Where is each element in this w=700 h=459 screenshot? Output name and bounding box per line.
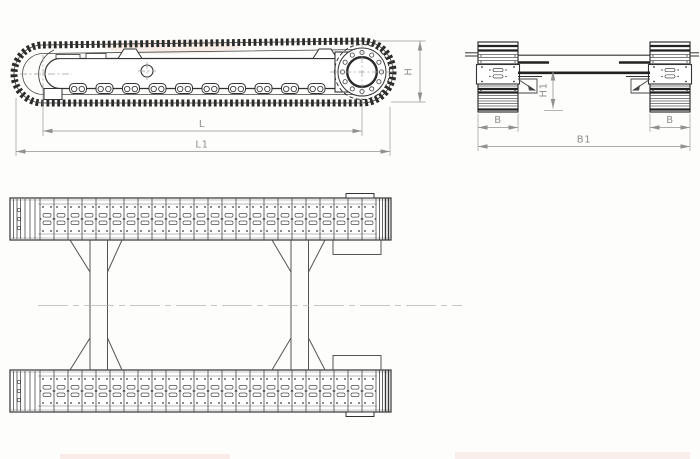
left-member-gusset3 xyxy=(70,338,90,370)
idler-guard-box xyxy=(44,89,62,100)
plan-top-track xyxy=(10,194,391,255)
right-member-gusset3 xyxy=(272,338,291,370)
dim-label-b1: B1 xyxy=(577,135,591,146)
drawing-canvas: L L1 H xyxy=(0,0,700,459)
front-left-track xyxy=(477,42,520,112)
front-right-track xyxy=(649,42,692,112)
right-member-gusset4 xyxy=(309,338,326,370)
plan-view xyxy=(10,194,462,417)
dim-label-h1: H1 xyxy=(539,82,550,97)
left-member-gusset1 xyxy=(70,240,90,272)
technical-drawing: L L1 H xyxy=(0,0,700,459)
frame-top-plate xyxy=(86,54,106,59)
plan-cross-members xyxy=(70,240,325,370)
plan-bottom-track xyxy=(10,356,391,417)
front-view: B B B1 H1 xyxy=(465,42,699,151)
left-member-gusset2 xyxy=(108,240,123,272)
right-member-gusset1 xyxy=(272,240,291,272)
dim-label-l: L xyxy=(199,119,205,130)
frame-cross-members xyxy=(518,55,650,76)
dim-label-l1: L1 xyxy=(195,140,208,151)
track-adjuster-cover xyxy=(56,55,80,59)
dim-label-b-left: B xyxy=(494,115,501,126)
dim-label-b-right: B xyxy=(666,115,673,126)
right-member-gusset2 xyxy=(309,240,326,272)
side-view: L L1 H xyxy=(14,41,426,156)
mount-bracket-right xyxy=(631,79,650,93)
left-member-gusset4 xyxy=(108,338,123,370)
mount-bracket-left xyxy=(518,79,537,93)
dim-label-h: H xyxy=(404,67,415,75)
